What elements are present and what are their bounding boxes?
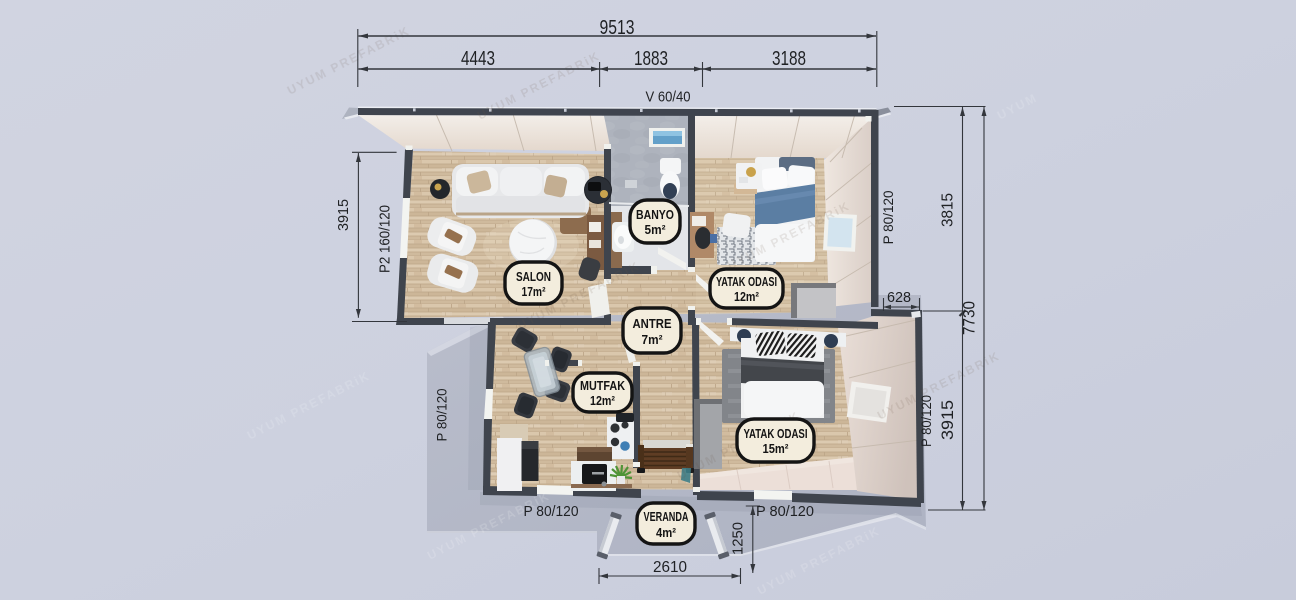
svg-text:3815: 3815 — [940, 193, 957, 227]
svg-text:P 80/120: P 80/120 — [756, 504, 814, 520]
svg-text:7730: 7730 — [960, 301, 979, 335]
svg-text:P 80/120: P 80/120 — [881, 190, 896, 244]
svg-text:VERANDA: VERANDA — [644, 510, 689, 524]
svg-text:MUTFAK: MUTFAK — [580, 379, 625, 393]
svg-text:12m²: 12m² — [734, 290, 759, 304]
svg-text:3188: 3188 — [772, 48, 806, 70]
svg-text:4m²: 4m² — [656, 526, 676, 540]
svg-text:12m²: 12m² — [590, 394, 615, 408]
svg-text:P 80/120: P 80/120 — [524, 504, 579, 520]
svg-text:15m²: 15m² — [763, 442, 789, 456]
svg-text:YATAK ODASI: YATAK ODASI — [744, 427, 808, 441]
svg-text:P 80/120: P 80/120 — [918, 395, 934, 447]
svg-text:ANTRE: ANTRE — [633, 317, 672, 331]
svg-text:2610: 2610 — [653, 559, 687, 576]
svg-text:V 60/40: V 60/40 — [646, 89, 691, 106]
svg-text:4443: 4443 — [461, 48, 495, 70]
svg-text:17m²: 17m² — [522, 285, 546, 299]
svg-text:SALON: SALON — [516, 270, 551, 284]
svg-text:BANYO: BANYO — [636, 208, 674, 222]
svg-text:628: 628 — [887, 289, 911, 306]
svg-text:3915: 3915 — [938, 400, 957, 440]
svg-text:3915: 3915 — [335, 199, 352, 231]
svg-text:9513: 9513 — [600, 17, 635, 39]
svg-text:7m²: 7m² — [642, 333, 663, 347]
svg-text:P 80/120: P 80/120 — [434, 388, 450, 441]
svg-text:P2 160/120: P2 160/120 — [378, 205, 394, 273]
svg-text:YATAK ODASI: YATAK ODASI — [716, 275, 777, 289]
svg-text:1883: 1883 — [634, 48, 668, 70]
svg-text:5m²: 5m² — [645, 223, 666, 237]
svg-text:1250: 1250 — [730, 522, 747, 555]
